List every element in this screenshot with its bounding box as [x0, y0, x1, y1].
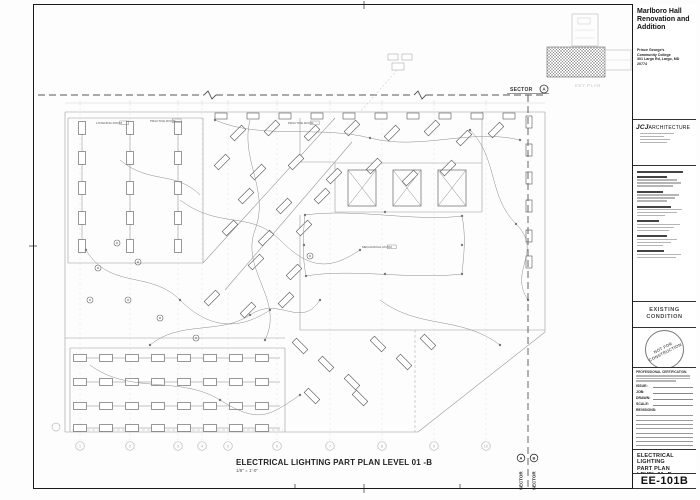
consultants-section [633, 166, 696, 302]
title-block: Marlboro Hall Renovation and Addition Pr… [632, 4, 696, 489]
architect-address-line [640, 136, 664, 137]
architect-phone-line [640, 142, 667, 143]
sheet-border [33, 4, 696, 489]
architect-phone-line [640, 139, 670, 140]
view-title-block: ELECTRICAL LIGHTING PART PLAN LEVEL 01 -… [236, 458, 556, 473]
architect-section: JCJARCHITECTURE [633, 120, 696, 166]
certification-section: PROFESSIONAL CERTIFICATION. ISSUE: JOB: … [633, 368, 696, 450]
sheet-number-box: EE-101B [633, 474, 696, 489]
project-title: Marlboro Hall Renovation and Addition [637, 8, 692, 32]
field-scale: SCALE: [636, 401, 693, 406]
architect-logo: JCJARCHITECTURE [636, 124, 693, 131]
project-info-section: Marlboro Hall Renovation and Addition Pr… [633, 4, 696, 120]
revision-lines [636, 412, 693, 450]
field-job: JOB: [636, 389, 693, 394]
professional-certification-label: PROFESSIONAL CERTIFICATION. [636, 370, 693, 374]
sheet-title: ELECTRICAL LIGHTING PART PLAN LEVEL 01 -… [633, 450, 696, 474]
existing-condition-label: EXISTING CONDITION [633, 307, 696, 321]
architect-address-line [640, 133, 674, 134]
view-scale: 1/8" = 1'-0" [236, 468, 556, 473]
status-section: EXISTING CONDITION [633, 302, 696, 328]
not-for-construction-stamp: NOT FOR CONSTRUCTION [645, 330, 684, 368]
field-drawn: DRAWN: [636, 395, 693, 400]
view-title: ELECTRICAL LIGHTING PART PLAN LEVEL 01 -… [236, 458, 556, 467]
client-info: Prince George's Community College 301 La… [637, 48, 692, 66]
stamp-section: NOT FOR CONSTRUCTION [633, 328, 696, 368]
field-issue: ISSUE: [636, 383, 693, 388]
sheet-number: EE-101B [633, 474, 696, 489]
consultant-firm-line [637, 171, 683, 173]
